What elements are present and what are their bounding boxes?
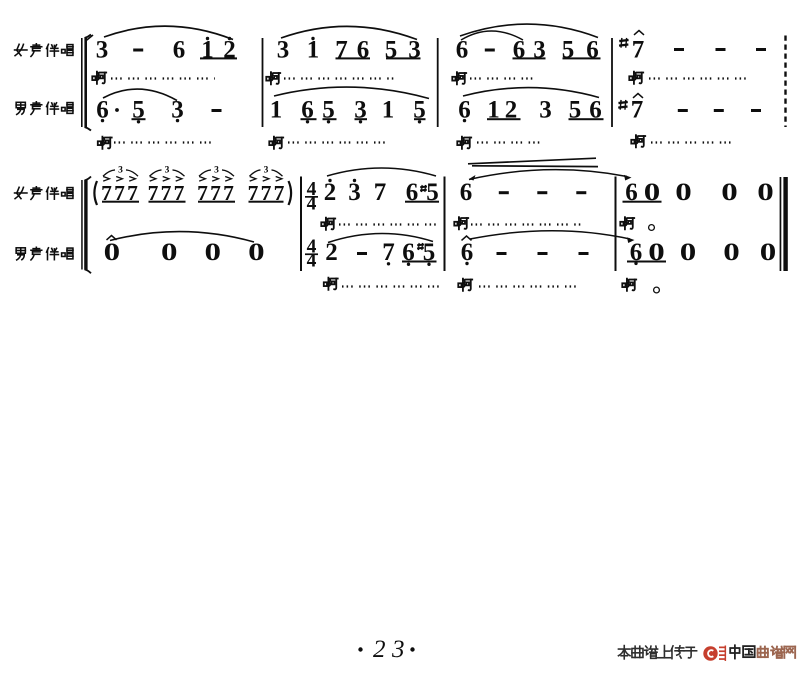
svg-text:3: 3 (408, 37, 421, 64)
svg-text:7: 7 (631, 97, 644, 124)
svg-text:2: 2 (324, 179, 337, 206)
svg-text:23: 23 (373, 636, 411, 663)
svg-text:3: 3 (533, 37, 546, 64)
svg-text:7: 7 (382, 239, 395, 266)
svg-text:2: 2 (223, 37, 236, 64)
svg-text:7: 7 (632, 37, 645, 64)
svg-text:3: 3 (277, 37, 290, 64)
svg-text:1: 1 (382, 97, 395, 124)
svg-text:7: 7 (335, 37, 348, 64)
svg-text:0: 0 (680, 239, 697, 266)
svg-text:3: 3 (165, 165, 170, 175)
svg-text:1: 1 (307, 37, 320, 64)
svg-text:6: 6 (173, 37, 186, 64)
svg-text:3: 3 (118, 165, 123, 175)
svg-text:6: 6 (586, 37, 599, 64)
svg-text:3: 3 (214, 165, 219, 175)
svg-text:0: 0 (760, 239, 777, 266)
svg-text:3: 3 (264, 165, 269, 175)
svg-text:6: 6 (460, 179, 473, 206)
svg-text:0: 0 (248, 239, 265, 266)
svg-text:3: 3 (348, 179, 361, 206)
svg-text:1: 1 (201, 37, 214, 64)
svg-text:4: 4 (307, 251, 317, 272)
svg-text:3: 3 (539, 97, 552, 124)
svg-text:0: 0 (757, 179, 774, 206)
svg-text:0: 0 (723, 239, 740, 266)
svg-text:7: 7 (374, 179, 387, 206)
svg-text:2: 2 (325, 239, 338, 266)
svg-text:5: 5 (385, 37, 398, 64)
svg-text:3: 3 (96, 37, 109, 64)
svg-text:0: 0 (675, 179, 692, 206)
svg-text:0: 0 (721, 179, 738, 206)
svg-text:6: 6 (513, 37, 526, 64)
svg-text:4: 4 (307, 194, 317, 215)
svg-text:6: 6 (456, 37, 469, 64)
svg-text:1: 1 (270, 97, 283, 124)
svg-text:0: 0 (104, 239, 121, 266)
svg-text:0: 0 (205, 239, 222, 266)
svg-text:6: 6 (357, 37, 370, 64)
svg-text:0: 0 (161, 239, 178, 266)
svg-text:5: 5 (562, 37, 575, 64)
